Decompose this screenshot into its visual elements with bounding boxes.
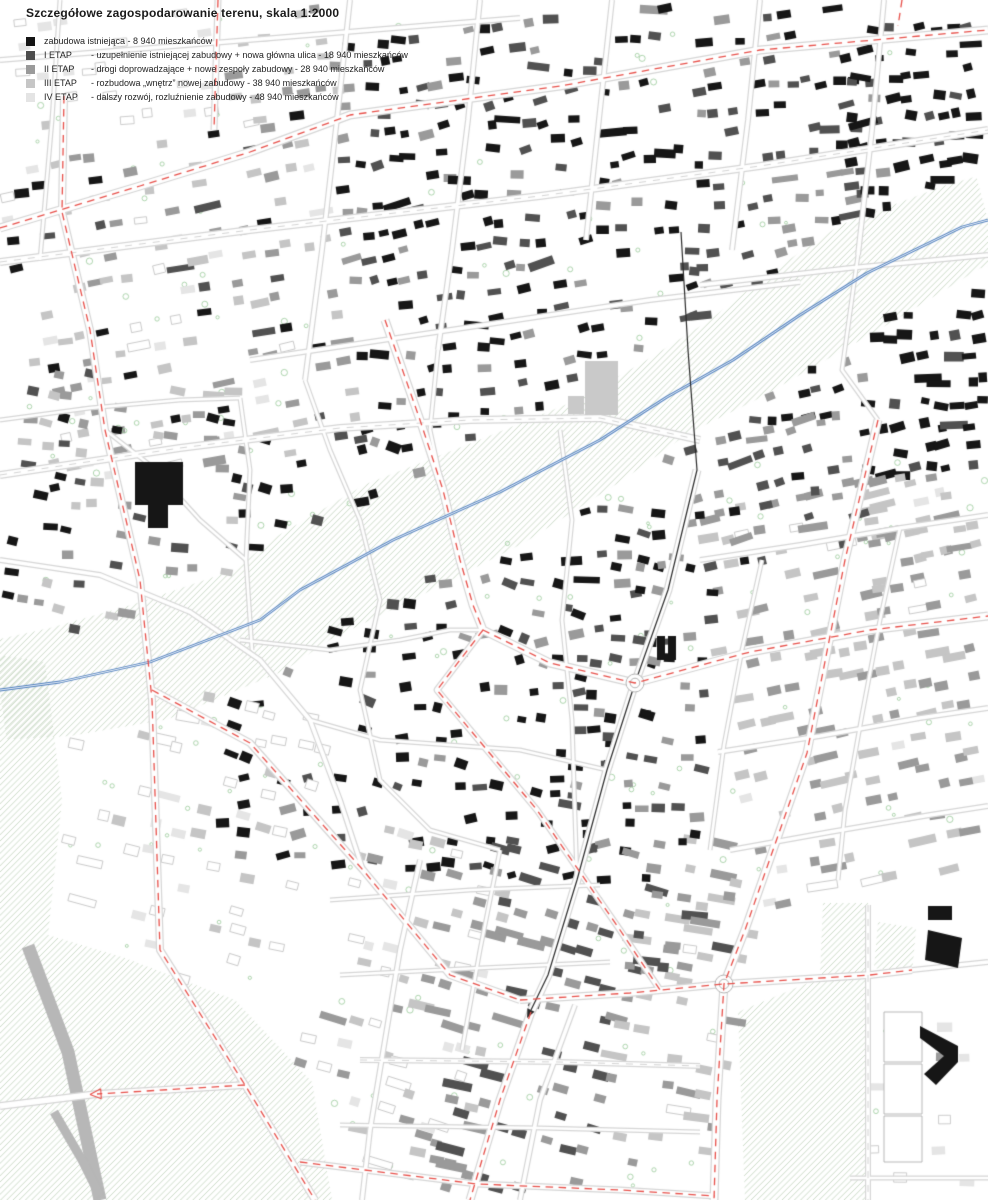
legend-stage-label: III ETAP (44, 78, 91, 88)
legend-stage-label: IV ETAP (44, 92, 91, 102)
legend: Szczegółowe zagospodarowanie terenu, ska… (26, 6, 408, 106)
legend-item: IV ETAP- dalszy rozwój, rozluźnienie zab… (26, 92, 408, 102)
legend-item: II ETAP- drogi doprowadzające + nowe zes… (26, 64, 408, 74)
legend-item-description: zabudowa istniejąca - 8 940 mieszkańców (44, 36, 212, 46)
legend-item-description: - drogi doprowadzające + nowe zespoły za… (91, 64, 384, 74)
legend-items: zabudowa istniejąca - 8 940 mieszkańcówI… (26, 36, 408, 102)
legend-item: zabudowa istniejąca - 8 940 mieszkańców (26, 36, 408, 46)
legend-item-description: - uzupełnienie istniejącej zabudowy + no… (91, 50, 408, 60)
plan-drawing: Szczegółowe zagospodarowanie terenu, ska… (0, 0, 988, 1200)
page-title: Szczegółowe zagospodarowanie terenu, ska… (26, 6, 408, 20)
legend-item: I ETAP- uzupełnienie istniejącej zabudow… (26, 50, 408, 60)
legend-item-description: - rozbudowa „wnętrz” nowej zabudowy - 38… (91, 78, 337, 88)
legend-stage-label: I ETAP (44, 50, 91, 60)
legend-swatch-icon (26, 51, 35, 60)
legend-swatch-icon (26, 93, 35, 102)
legend-item-description: - dalszy rozwój, rozluźnienie zabudowy -… (91, 92, 339, 102)
legend-item: III ETAP- rozbudowa „wnętrz” nowej zabud… (26, 78, 408, 88)
legend-swatch-icon (26, 79, 35, 88)
map-canvas (0, 0, 988, 1200)
legend-stage-label: II ETAP (44, 64, 91, 74)
legend-swatch-icon (26, 65, 35, 74)
legend-swatch-icon (26, 37, 35, 46)
